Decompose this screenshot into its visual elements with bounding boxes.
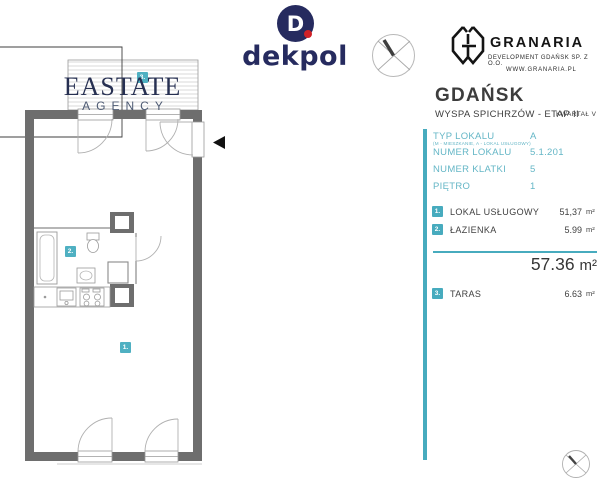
area-row-lokal-uslugowy: 1. LOKAL USŁUGOWY 51,37 m² xyxy=(432,206,604,219)
total-area: 57.36 m² xyxy=(440,254,597,275)
shower xyxy=(108,262,128,283)
granaria-logo: GRANARIA DEVELOPMENT GDAŃSK SP. Z O.O. W… xyxy=(450,22,600,80)
room-area: 51,37 xyxy=(540,207,582,217)
room-number-badge: 1. xyxy=(432,206,443,217)
detail-label: PIĘTRO xyxy=(433,181,470,192)
room-number-badge: 2. xyxy=(432,224,443,235)
room-name: LOKAL USŁUGOWY xyxy=(450,207,539,217)
detail-value: 5.1.201 xyxy=(530,147,564,158)
compass-north-icon xyxy=(371,33,416,78)
room-name: ŁAZIENKA xyxy=(450,225,497,235)
room-number-badge: 3. xyxy=(432,288,443,299)
room-area: 5.99 xyxy=(540,225,582,235)
granaria-subtitle: DEVELOPMENT GDAŃSK SP. Z O.O. xyxy=(488,55,600,67)
compass-south-icon xyxy=(560,448,592,480)
dekpol-wordmark: dekpol xyxy=(236,41,354,72)
total-area-unit: m² xyxy=(580,257,598,274)
area-row-taras: 3. TARAS 6.63 m² xyxy=(432,288,604,301)
room-area-unit: m² xyxy=(586,207,595,216)
detail-row-numer-lokalu: NUMER LOKALU 5.1.201 xyxy=(433,147,603,161)
granaria-mark-icon xyxy=(450,24,486,66)
detail-row-numer-klatki: NUMER KLATKI 5 xyxy=(433,164,603,178)
room-area: 6.63 xyxy=(540,289,582,299)
detail-label: NUMER LOKALU xyxy=(433,147,512,158)
detail-label: NUMER KLATKI xyxy=(433,164,506,175)
detail-value: 1 xyxy=(530,181,536,192)
quarter-label: KWARTAŁ V xyxy=(556,111,596,118)
detail-row-pietro: PIĘTRO 1 xyxy=(433,181,603,195)
detail-value: 5 xyxy=(530,164,536,175)
entrance-door xyxy=(160,122,204,157)
dekpol-logo: D dekpol xyxy=(236,3,354,83)
room-name: TARAS xyxy=(450,289,481,299)
bathroom-door-swing xyxy=(136,236,161,261)
watermark-eastate: EASTATE xyxy=(52,72,193,102)
granaria-website: WWW.GRANARIA.PL xyxy=(506,67,577,73)
washbasin xyxy=(77,268,95,283)
granaria-name: GRANARIA xyxy=(490,35,584,51)
kitchen-counter xyxy=(34,287,110,307)
panel-accent-bar xyxy=(423,129,427,460)
room-area-unit: m² xyxy=(586,289,595,298)
entrance-arrow-icon xyxy=(213,136,225,149)
dekpol-red-dot-icon xyxy=(304,30,312,38)
area-row-lazienka: 2. ŁAZIENKA 5.99 m² xyxy=(432,224,604,237)
shafts xyxy=(110,212,134,307)
detail-sublabel: (M - MIESZKANIE, A - LOKAL USŁUGOWY) xyxy=(433,141,531,146)
plan-badge-bathroom: 2. xyxy=(65,246,76,257)
toilet xyxy=(87,233,99,253)
total-area-value: 57.36 xyxy=(531,254,575,274)
watermark-agency: AGENCY xyxy=(52,99,193,113)
city-title: GDAŃSK xyxy=(435,85,525,107)
room-area-unit: m² xyxy=(586,225,595,234)
total-divider xyxy=(433,251,597,253)
floor-plan-card: { "branding": { "dekpol": { "monogram": … xyxy=(0,0,615,480)
bathtub xyxy=(37,232,57,284)
bottom-door-swings xyxy=(78,418,178,452)
plan-badge-main-room: 1. xyxy=(120,342,131,353)
